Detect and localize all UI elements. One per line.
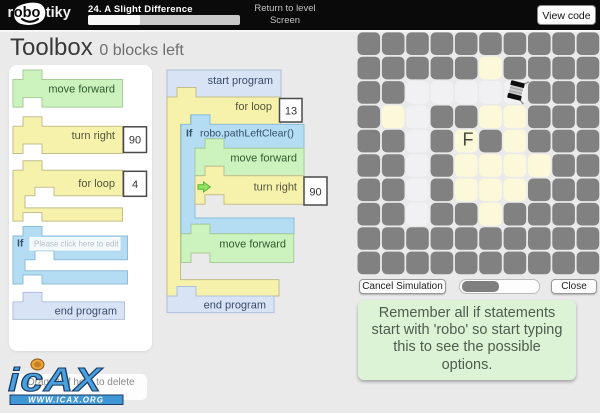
svg-text:Please click here to edit: Please click here to edit [34, 240, 119, 249]
svg-text:icAX: icAX [8, 360, 103, 398]
svg-text:90: 90 [129, 135, 141, 147]
svg-text:WWW.ICAX.ORG: WWW.ICAX.ORG [28, 396, 104, 405]
svg-text:move forward: move forward [48, 84, 115, 96]
svg-text:for loop: for loop [235, 101, 272, 113]
svg-text:end program: end program [204, 300, 266, 312]
svg-text:turn right: turn right [254, 182, 297, 194]
svg-text:If: If [186, 128, 193, 140]
svg-text:start program: start program [208, 75, 273, 87]
svg-text:4: 4 [132, 179, 138, 191]
svg-text:13: 13 [285, 106, 297, 118]
svg-text:If: If [17, 238, 24, 250]
svg-text:move forward: move forward [230, 153, 297, 165]
svg-text:90: 90 [309, 187, 321, 199]
svg-text:turn right: turn right [72, 130, 115, 142]
svg-text:for loop: for loop [78, 178, 115, 190]
svg-text:end program: end program [55, 306, 117, 318]
svg-text:move forward: move forward [219, 239, 286, 251]
svg-text:robo.pathLeftClear(): robo.pathLeftClear() [200, 128, 294, 140]
svg-text:F: F [463, 129, 474, 149]
